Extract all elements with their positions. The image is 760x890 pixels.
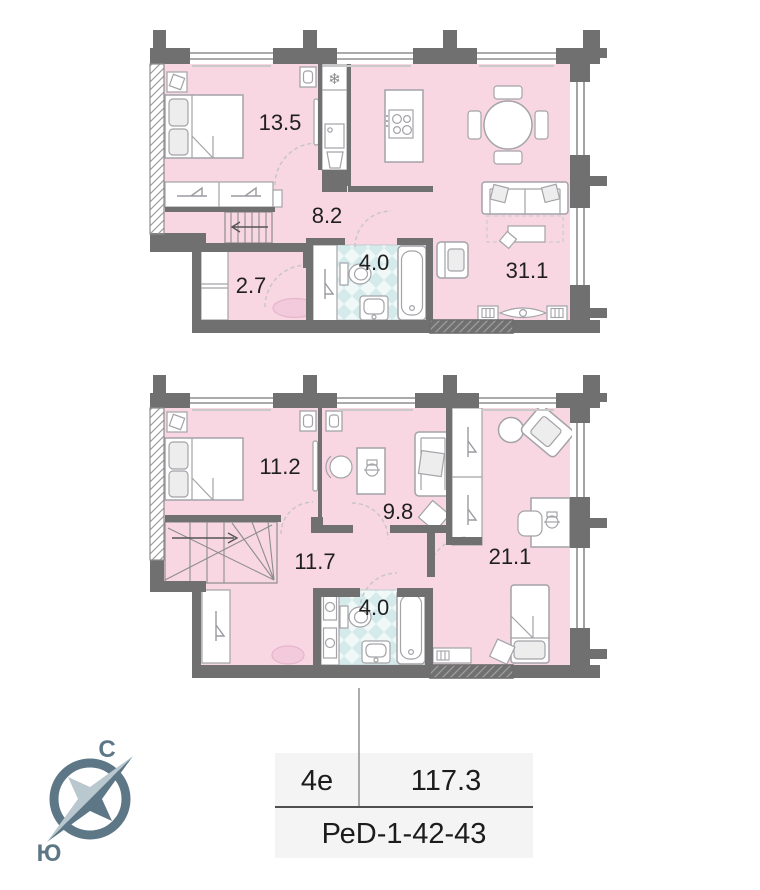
room-label-9-8: 9.8: [383, 499, 414, 524]
kitchen-bucket: [327, 152, 343, 168]
apartment-area: 117.3: [411, 765, 481, 797]
room-label-21-1: 21.1: [489, 544, 532, 569]
room-label-8-2: 8.2: [312, 203, 343, 228]
lower-bedroom-bed: [165, 438, 243, 500]
room-label-31-1: 31.1: [506, 258, 549, 283]
washer-icon: [300, 67, 316, 87]
apartment-type: 4е: [301, 765, 333, 797]
armchair: [437, 242, 468, 278]
apartment-info-table: 4е 117.3 РеD-1-42-43: [275, 688, 533, 858]
room-label-13-5: 13.5: [259, 110, 302, 135]
lower-nightstand: [167, 412, 187, 432]
upper-bedroom-wardrobe: [165, 182, 282, 207]
kitchen-island: [385, 90, 423, 162]
single-bed: [511, 585, 549, 663]
floor-plan-page: ❄: [0, 0, 760, 890]
round-table: [499, 418, 524, 443]
floor-plan-upper: ❄: [150, 30, 607, 333]
cabinet-21-1: [433, 648, 471, 663]
upper-stairs: [225, 212, 272, 243]
lower-bathtub: [397, 590, 425, 664]
compass-south-label: Ю: [37, 840, 62, 867]
closet-box-1: [300, 411, 316, 431]
upper-nightstand: [167, 72, 187, 92]
upper-sink: [360, 296, 388, 320]
fridge-icon: ❄: [328, 71, 341, 88]
compass-rose: С Ю: [37, 736, 133, 867]
sofa: [482, 182, 568, 214]
wardrobe-column: [452, 408, 482, 545]
upper-bedroom-door-leaf: [314, 99, 319, 145]
upper-bathtub: [398, 246, 426, 320]
hall-cabinet: [313, 245, 337, 322]
lower-rug: [272, 646, 304, 664]
hall-wardrobe-lower: [202, 590, 230, 663]
lower-bedroom-door-leaf: [313, 441, 318, 491]
room-label-11-2: 11.2: [259, 454, 300, 479]
room-label-4-0-upper: 4.0: [359, 250, 390, 275]
room-label-4-0-lower: 4.0: [359, 595, 390, 620]
floor-plan-lower: 11.2 9.8 11.7 4.0 21.1: [150, 375, 607, 678]
room-label-2-7: 2.7: [236, 273, 267, 298]
compass-north-label: С: [98, 736, 115, 763]
storage-cabinet: [201, 248, 228, 320]
lower-sink: [362, 641, 390, 663]
room-9-8-sofa: [415, 432, 451, 496]
kitchen-sink: [325, 124, 344, 148]
room-9-8-desk: [357, 448, 385, 494]
laundry-column: [321, 590, 339, 665]
lower-stairs: [165, 522, 277, 583]
duplex-floor-plan: ❄: [0, 0, 760, 890]
closet-box-2: [326, 411, 342, 431]
room-label-11-7: 11.7: [294, 549, 335, 574]
upper-bedroom-bed: [165, 95, 243, 158]
apartment-code: РеD-1-42-43: [322, 818, 487, 850]
